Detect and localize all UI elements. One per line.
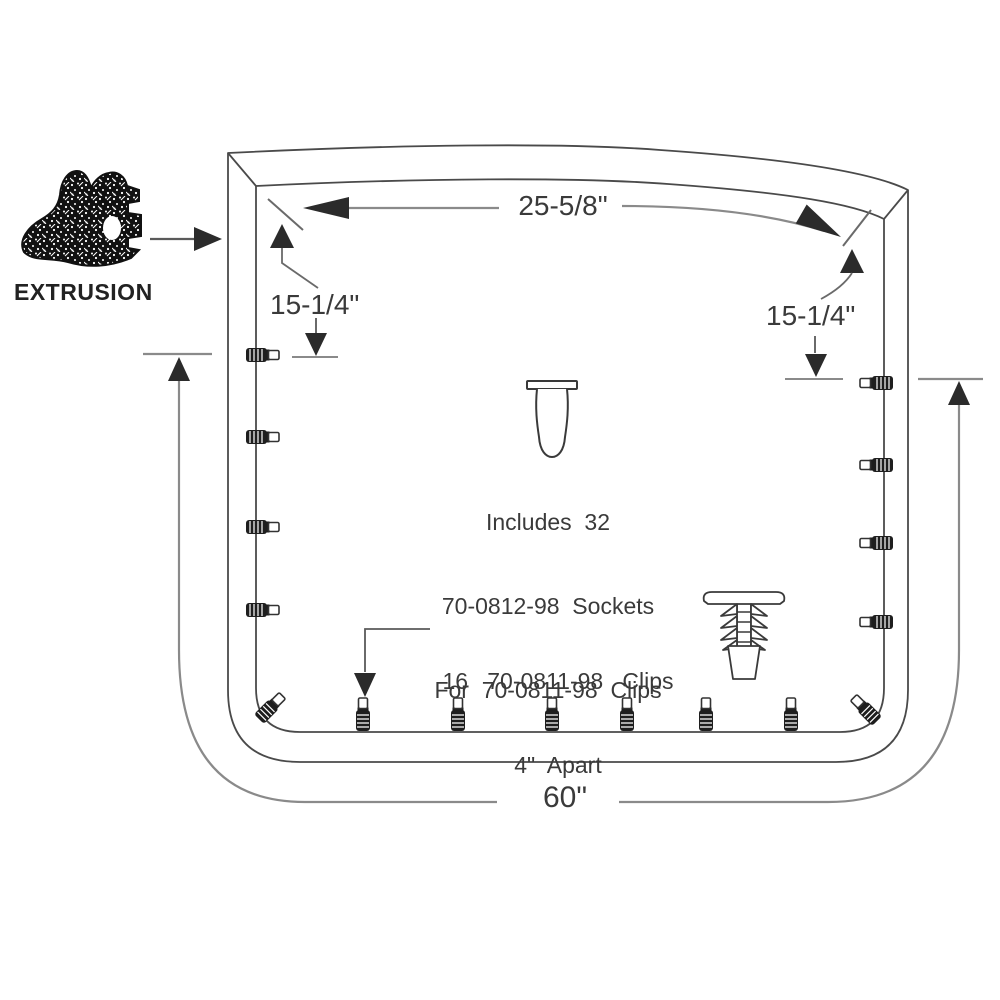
down-arrow-icon [805, 354, 827, 377]
dim-line-right-segment [622, 206, 824, 231]
clip-fastener-left [246, 603, 279, 617]
clip-fastener-right [860, 536, 893, 550]
clip-fastener-right [860, 615, 893, 629]
leader-line [282, 248, 318, 288]
leader-line [821, 273, 852, 299]
socket-body [536, 389, 568, 457]
sockets-note-line1: Includes 32 [403, 508, 693, 536]
socket-grommet-icon [527, 381, 577, 457]
clip-fastener-left [246, 520, 279, 534]
arrowhead-right-icon [796, 204, 847, 246]
clip-rungs [737, 612, 751, 642]
up-arrow-right-icon [948, 381, 970, 405]
extrusion-label: EXTRUSION [14, 279, 153, 306]
christmas-tree-clip-icon [704, 592, 785, 679]
clip-fastener-bottom [356, 698, 370, 731]
clip-fastener-left [246, 430, 279, 444]
clip-cap [704, 592, 785, 604]
clip-barbs-right [751, 604, 767, 650]
down-arrow-icon [305, 333, 327, 356]
clip-fastener-corner [849, 693, 882, 726]
dim-top-width-label: 25-5/8" [498, 190, 628, 222]
tick-mark-top-right [843, 210, 871, 246]
socket-flange [527, 381, 577, 389]
diagram-page: EXTRUSION 25-5/8" 15-1/4" 15-1/4" Includ… [0, 0, 1000, 1000]
rubber-extrusion-cross-section-icon [22, 171, 141, 266]
up-arrow-icon [840, 249, 864, 273]
clip-fastener-right [860, 458, 893, 472]
extrusion-hole [103, 216, 121, 240]
clips-note-line2: 4" Apart [408, 751, 708, 779]
clip-shaft [737, 604, 751, 646]
clip-fastener-left [246, 348, 279, 362]
clip-tip [728, 646, 760, 679]
dim-bottom-width-label: 60" [515, 781, 615, 815]
up-arrow-icon [270, 224, 294, 248]
tick-mark-top-left [268, 199, 303, 230]
up-arrow-left-icon [168, 357, 190, 381]
frame-corner-miter-left [228, 153, 256, 186]
frame-corner-miter-right [884, 190, 908, 219]
down-arrow-icon [354, 673, 376, 697]
right-arrow-icon [194, 227, 222, 251]
clip-fastener-right [860, 376, 893, 390]
clips-note-line1: 16 70-0811-98 Clips [408, 667, 708, 695]
dim-right-height-label: 15-1/4" [766, 300, 855, 332]
arrowhead-left-icon [303, 197, 349, 219]
clip-barbs-left [721, 604, 737, 650]
clip-fastener-bottom [784, 698, 798, 731]
dim-left-height-label: 15-1/4" [270, 289, 359, 321]
extrusion-callout [22, 171, 222, 266]
